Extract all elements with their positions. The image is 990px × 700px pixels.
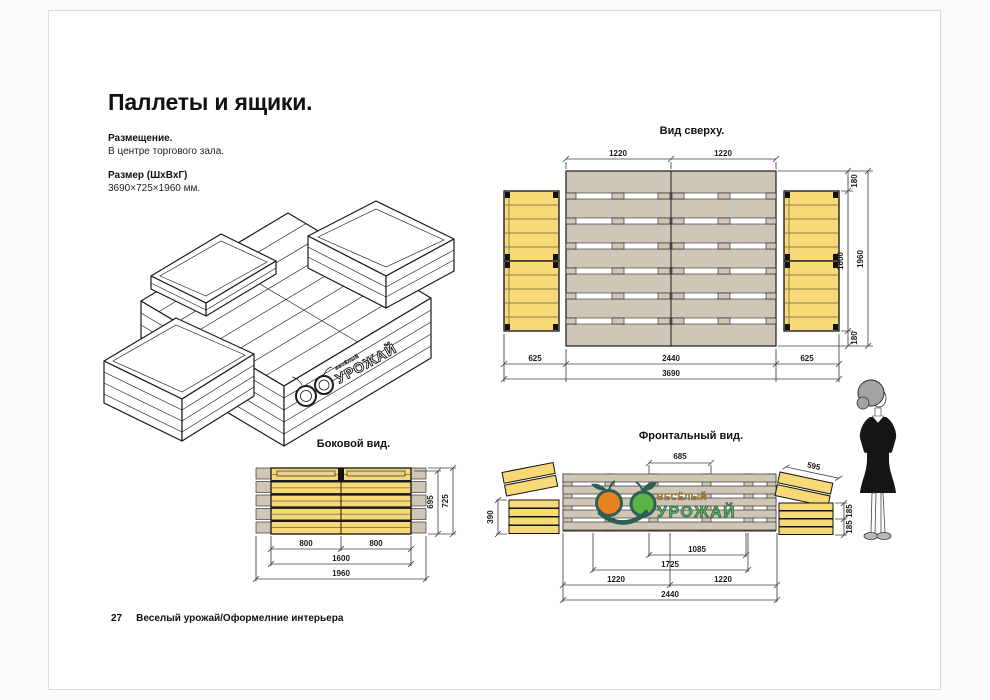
- side-view-left-blocks: [256, 468, 271, 533]
- dim-side-1600: 1600: [332, 554, 350, 563]
- front-view-left-stack: [509, 500, 559, 534]
- dim-front-1220-right: 1220: [714, 575, 732, 584]
- placement-value: В центре торгового зала.: [108, 145, 224, 158]
- dim-bottom-2440: 2440: [662, 354, 680, 363]
- woman-shoe-left: [864, 533, 878, 540]
- dim-front-685: 685: [673, 452, 687, 461]
- placement-label: Размещение.: [108, 132, 224, 145]
- dim-side-800-right: 800: [369, 539, 383, 548]
- woman-dress: [860, 417, 896, 493]
- meta-block: Размещение. В центре торгового зала. Раз…: [108, 132, 224, 195]
- dim-bottom-625-left: 625: [528, 354, 542, 363]
- dim-right-1600: 1600: [836, 252, 845, 270]
- dim-right-1960: 1960: [856, 250, 865, 268]
- page-number: 27: [111, 613, 122, 624]
- dim-side-1960: 1960: [332, 569, 350, 578]
- dim-side-695: 695: [426, 495, 435, 509]
- woman-shoe-right: [877, 533, 891, 540]
- dim-top-1220-left: 1220: [609, 149, 627, 158]
- front-view-title: Фронтальный вид.: [471, 430, 911, 442]
- front-view-pallet: [563, 474, 776, 531]
- side-view-drawing: 695 725 800 800 1600 1960: [231, 456, 476, 606]
- top-view-title: Вид сверху.: [496, 125, 888, 137]
- dim-bottom-625-right: 625: [800, 354, 814, 363]
- dim-right-180-top: 180: [850, 174, 859, 188]
- front-view-left-tilted-crate: [502, 463, 558, 496]
- dim-front-1085: 1085: [688, 545, 706, 554]
- dim-front-390: 390: [486, 510, 495, 524]
- size-label: Размер (ШхВхГ): [108, 169, 224, 182]
- front-view-right-tilted-crate: [775, 472, 833, 507]
- dim-front-1220-left: 1220: [607, 575, 625, 584]
- side-view-structure: [256, 468, 426, 534]
- logo-green-fruit: [631, 492, 655, 516]
- front-view-right-stack: [779, 503, 833, 535]
- dim-front-2440: 2440: [661, 590, 679, 599]
- logo-brand-main: УРОЖАЙ: [657, 502, 736, 521]
- footer-text: Веселый урожай/Оформелние интерьера: [136, 613, 343, 624]
- scale-figure: [846, 376, 911, 551]
- isometric-drawing: весёлый УРОЖАЙ: [96, 196, 466, 451]
- side-view-right-blocks: [411, 468, 426, 533]
- size-value: 3690×725×1960 мм.: [108, 182, 224, 195]
- woman-leg-left: [871, 493, 876, 533]
- top-view-pallet: [566, 171, 776, 346]
- top-view-drawing: 1220 1220 180 1600 1960 180 625 2440 625…: [496, 143, 888, 393]
- footer: 27 Веселый урожай/Оформелние интерьера: [111, 613, 343, 624]
- dim-side-800-left: 800: [299, 539, 313, 548]
- woman-leg-right: [881, 493, 885, 533]
- front-view-drawing: ВЕСЁЛЫЙ УРОЖАЙ 685 595 390 185 185 1085 …: [471, 446, 911, 606]
- logo-brand-top: ВЕСЁЛЫЙ: [657, 491, 707, 502]
- dim-front-595: 595: [806, 460, 821, 472]
- sheet: Паллеты и ящики. Размещение. В центре то…: [48, 10, 941, 690]
- side-view-title: Боковой вид.: [231, 438, 476, 450]
- dim-bottom-3690: 3690: [662, 369, 680, 378]
- dim-top-1220-right: 1220: [714, 149, 732, 158]
- dim-right-180-bottom: 180: [850, 331, 859, 345]
- dim-side-725: 725: [441, 494, 450, 508]
- woman-silhouette: [857, 380, 896, 540]
- page-title: Паллеты и ящики.: [108, 89, 312, 116]
